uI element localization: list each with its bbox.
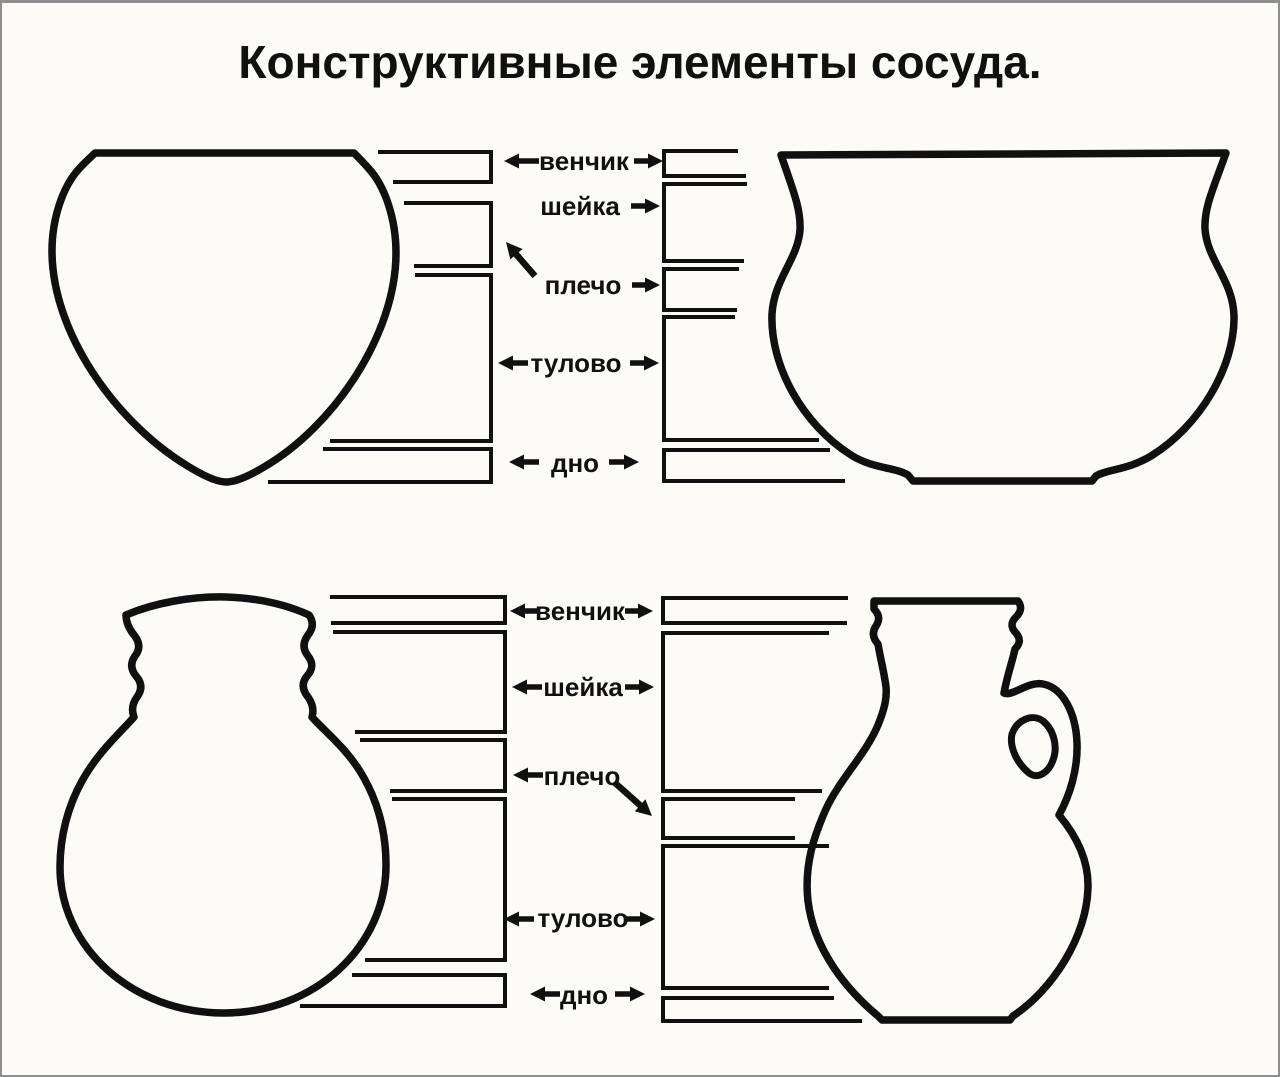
arrow-right-icon	[615, 987, 645, 1002]
bracket-bottom-right-neck	[663, 633, 829, 791]
bracket-top-left-rim	[378, 152, 491, 182]
vessel-bottom-right-outline	[807, 601, 1088, 1020]
zone-label-bottom-body: тулово	[537, 903, 628, 933]
bracket-top-right-rim	[664, 151, 746, 176]
labels-top: венчик шейка плечо	[498, 146, 663, 478]
arrow-right-icon	[625, 604, 653, 619]
bracket-bottom-right-shoulder	[663, 799, 795, 838]
arrow-left-icon	[498, 356, 528, 371]
arrow-down-right-icon	[614, 782, 652, 816]
vessel-bottom-right	[807, 601, 1088, 1020]
bracket-bottom-left-rim	[330, 597, 505, 623]
bracket-bottom-left-neck	[333, 632, 505, 732]
arrow-right-icon	[632, 278, 660, 293]
bracket-top-right-body	[664, 317, 819, 440]
bracket-bottom-right-body	[663, 846, 829, 988]
arrow-right-icon	[631, 199, 660, 214]
vessel-handle-hole	[1011, 718, 1055, 776]
bracket-bottom-left-shoulder	[360, 740, 505, 791]
arrow-right-icon	[625, 912, 655, 927]
arrow-left-icon	[504, 154, 539, 169]
arrow-left-icon	[530, 987, 560, 1002]
brackets-bottom-right	[663, 598, 862, 1021]
vessel-diagram-canvas: венчик шейка плечо	[2, 3, 1280, 1077]
bracket-top-left-neck	[404, 203, 491, 266]
bracket-top-left-base	[268, 449, 491, 482]
bracket-bottom-right-rim	[663, 598, 848, 623]
bracket-bottom-right-base	[663, 998, 862, 1021]
zone-label-bottom-base: дно	[560, 980, 608, 1010]
zone-label-bottom-neck: шейка	[543, 672, 623, 702]
vessel-top-right	[772, 153, 1234, 481]
arrow-right-icon	[634, 154, 663, 169]
poster-page: Конструктивные элементы сосуда.	[0, 0, 1280, 1077]
arrow-right-icon	[630, 356, 659, 371]
vessel-top-left	[52, 153, 396, 482]
brackets-top-left	[268, 152, 491, 482]
arrow-right-icon	[625, 680, 654, 695]
zone-label-top-body: тулово	[530, 348, 621, 378]
brackets-bottom-left	[300, 597, 505, 1006]
bracket-top-right-shoulder	[664, 269, 739, 310]
arrow-up-left-icon	[506, 242, 535, 276]
vessel-bottom-left-outline	[60, 597, 386, 1013]
zone-label-top-neck: шейка	[540, 191, 620, 221]
bracket-top-right-base	[664, 450, 845, 481]
arrow-left-icon	[512, 680, 542, 695]
arrow-left-icon	[504, 912, 534, 927]
bracket-top-left-body	[330, 275, 491, 441]
vessel-top-left-outline	[52, 153, 396, 482]
zone-label-bottom-rim: венчик	[535, 596, 626, 626]
labels-bottom: венчик шейка плечо	[504, 596, 655, 1010]
vessel-bottom-left	[60, 597, 386, 1013]
bracket-top-right-neck	[664, 184, 747, 261]
zone-label-bottom-shoulder: плечо	[544, 761, 621, 791]
zone-label-top-base: дно	[551, 448, 599, 478]
arrow-left-icon	[513, 768, 543, 783]
arrow-right-icon	[609, 455, 639, 470]
zone-label-top-rim: венчик	[539, 146, 630, 176]
zone-label-top-shoulder: плечо	[545, 270, 622, 300]
vessel-top-right-outline	[772, 153, 1234, 481]
arrow-left-icon	[509, 455, 539, 470]
